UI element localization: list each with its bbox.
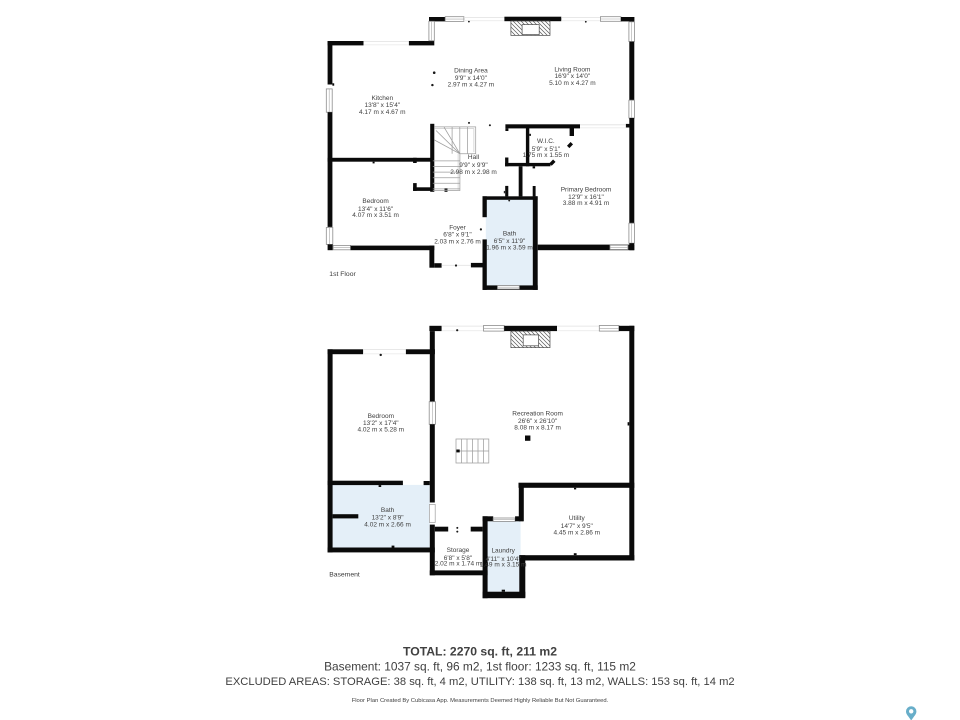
svg-text:Recreation Room: Recreation Room xyxy=(512,411,563,418)
svg-text:Bedroom: Bedroom xyxy=(362,198,388,205)
svg-text:1.75 m x 1.55 m: 1.75 m x 1.55 m xyxy=(523,152,570,159)
svg-text:Floor Plan Created By Cubicasa: Floor Plan Created By Cubicasa App. Meas… xyxy=(352,698,609,704)
svg-text:Dining Area: Dining Area xyxy=(454,68,488,75)
svg-text:W.I.C.: W.I.C. xyxy=(537,138,555,145)
svg-text:Bath: Bath xyxy=(503,230,517,237)
svg-text:2.98 m x 2.98 m: 2.98 m x 2.98 m xyxy=(450,169,497,176)
svg-text:4.45 m x 2.86 m: 4.45 m x 2.86 m xyxy=(553,530,600,537)
svg-text:1.96 m x 3.59 m: 1.96 m x 3.59 m xyxy=(486,245,533,252)
svg-text:Storage: Storage xyxy=(447,547,470,554)
svg-text:Basement: 1037 sq. ft, 96 m2,: Basement: 1037 sq. ft, 96 m2, 1st floor:… xyxy=(324,659,636,673)
svg-text:8.08 m x 8.17 m: 8.08 m x 8.17 m xyxy=(514,424,561,431)
svg-text:Foyer: Foyer xyxy=(449,224,466,231)
svg-text:Primary Bedroom: Primary Bedroom xyxy=(561,186,612,193)
svg-text:2.97 m x 4.27 m: 2.97 m x 4.27 m xyxy=(448,81,495,88)
svg-text:Bedroom: Bedroom xyxy=(368,413,394,420)
svg-text:3.88 m x 4.91 m: 3.88 m x 4.91 m xyxy=(563,200,610,207)
svg-text:4.07 m x 3.51 m: 4.07 m x 3.51 m xyxy=(352,212,399,219)
svg-text:Utility: Utility xyxy=(569,515,586,522)
svg-text:Hall: Hall xyxy=(468,154,480,161)
svg-text:TOTAL: 2270 sq. ft, 211 m2: TOTAL: 2270 sq. ft, 211 m2 xyxy=(403,645,557,659)
svg-text:Kitchen: Kitchen xyxy=(371,95,393,102)
svg-text:Bath: Bath xyxy=(381,507,395,514)
svg-text:1.49 m x 3.15 m: 1.49 m x 3.15 m xyxy=(480,561,527,568)
svg-text:Basement: Basement xyxy=(329,572,360,579)
svg-text:5.10 m x 4.27 m: 5.10 m x 4.27 m xyxy=(549,80,596,87)
svg-text:4.17 m x 4.67 m: 4.17 m x 4.67 m xyxy=(359,109,406,116)
svg-text:13'2" x 8'9": 13'2" x 8'9" xyxy=(372,514,405,521)
svg-text:4.02 m x 2.66 m: 4.02 m x 2.66 m xyxy=(364,521,411,528)
svg-text:2.03 m x 2.76 m: 2.03 m x 2.76 m xyxy=(434,239,481,246)
svg-text:EXCLUDED AREAS: STORAGE: 38 sq: EXCLUDED AREAS: STORAGE: 38 sq. ft, 4 m2… xyxy=(225,676,734,688)
svg-text:1st Floor: 1st Floor xyxy=(329,271,356,278)
svg-text:Laundry: Laundry xyxy=(491,547,515,554)
svg-text:4.02 m x 5.28 m: 4.02 m x 5.28 m xyxy=(357,426,404,433)
svg-text:2.02 m x 1.74 m: 2.02 m x 1.74 m xyxy=(435,560,482,567)
